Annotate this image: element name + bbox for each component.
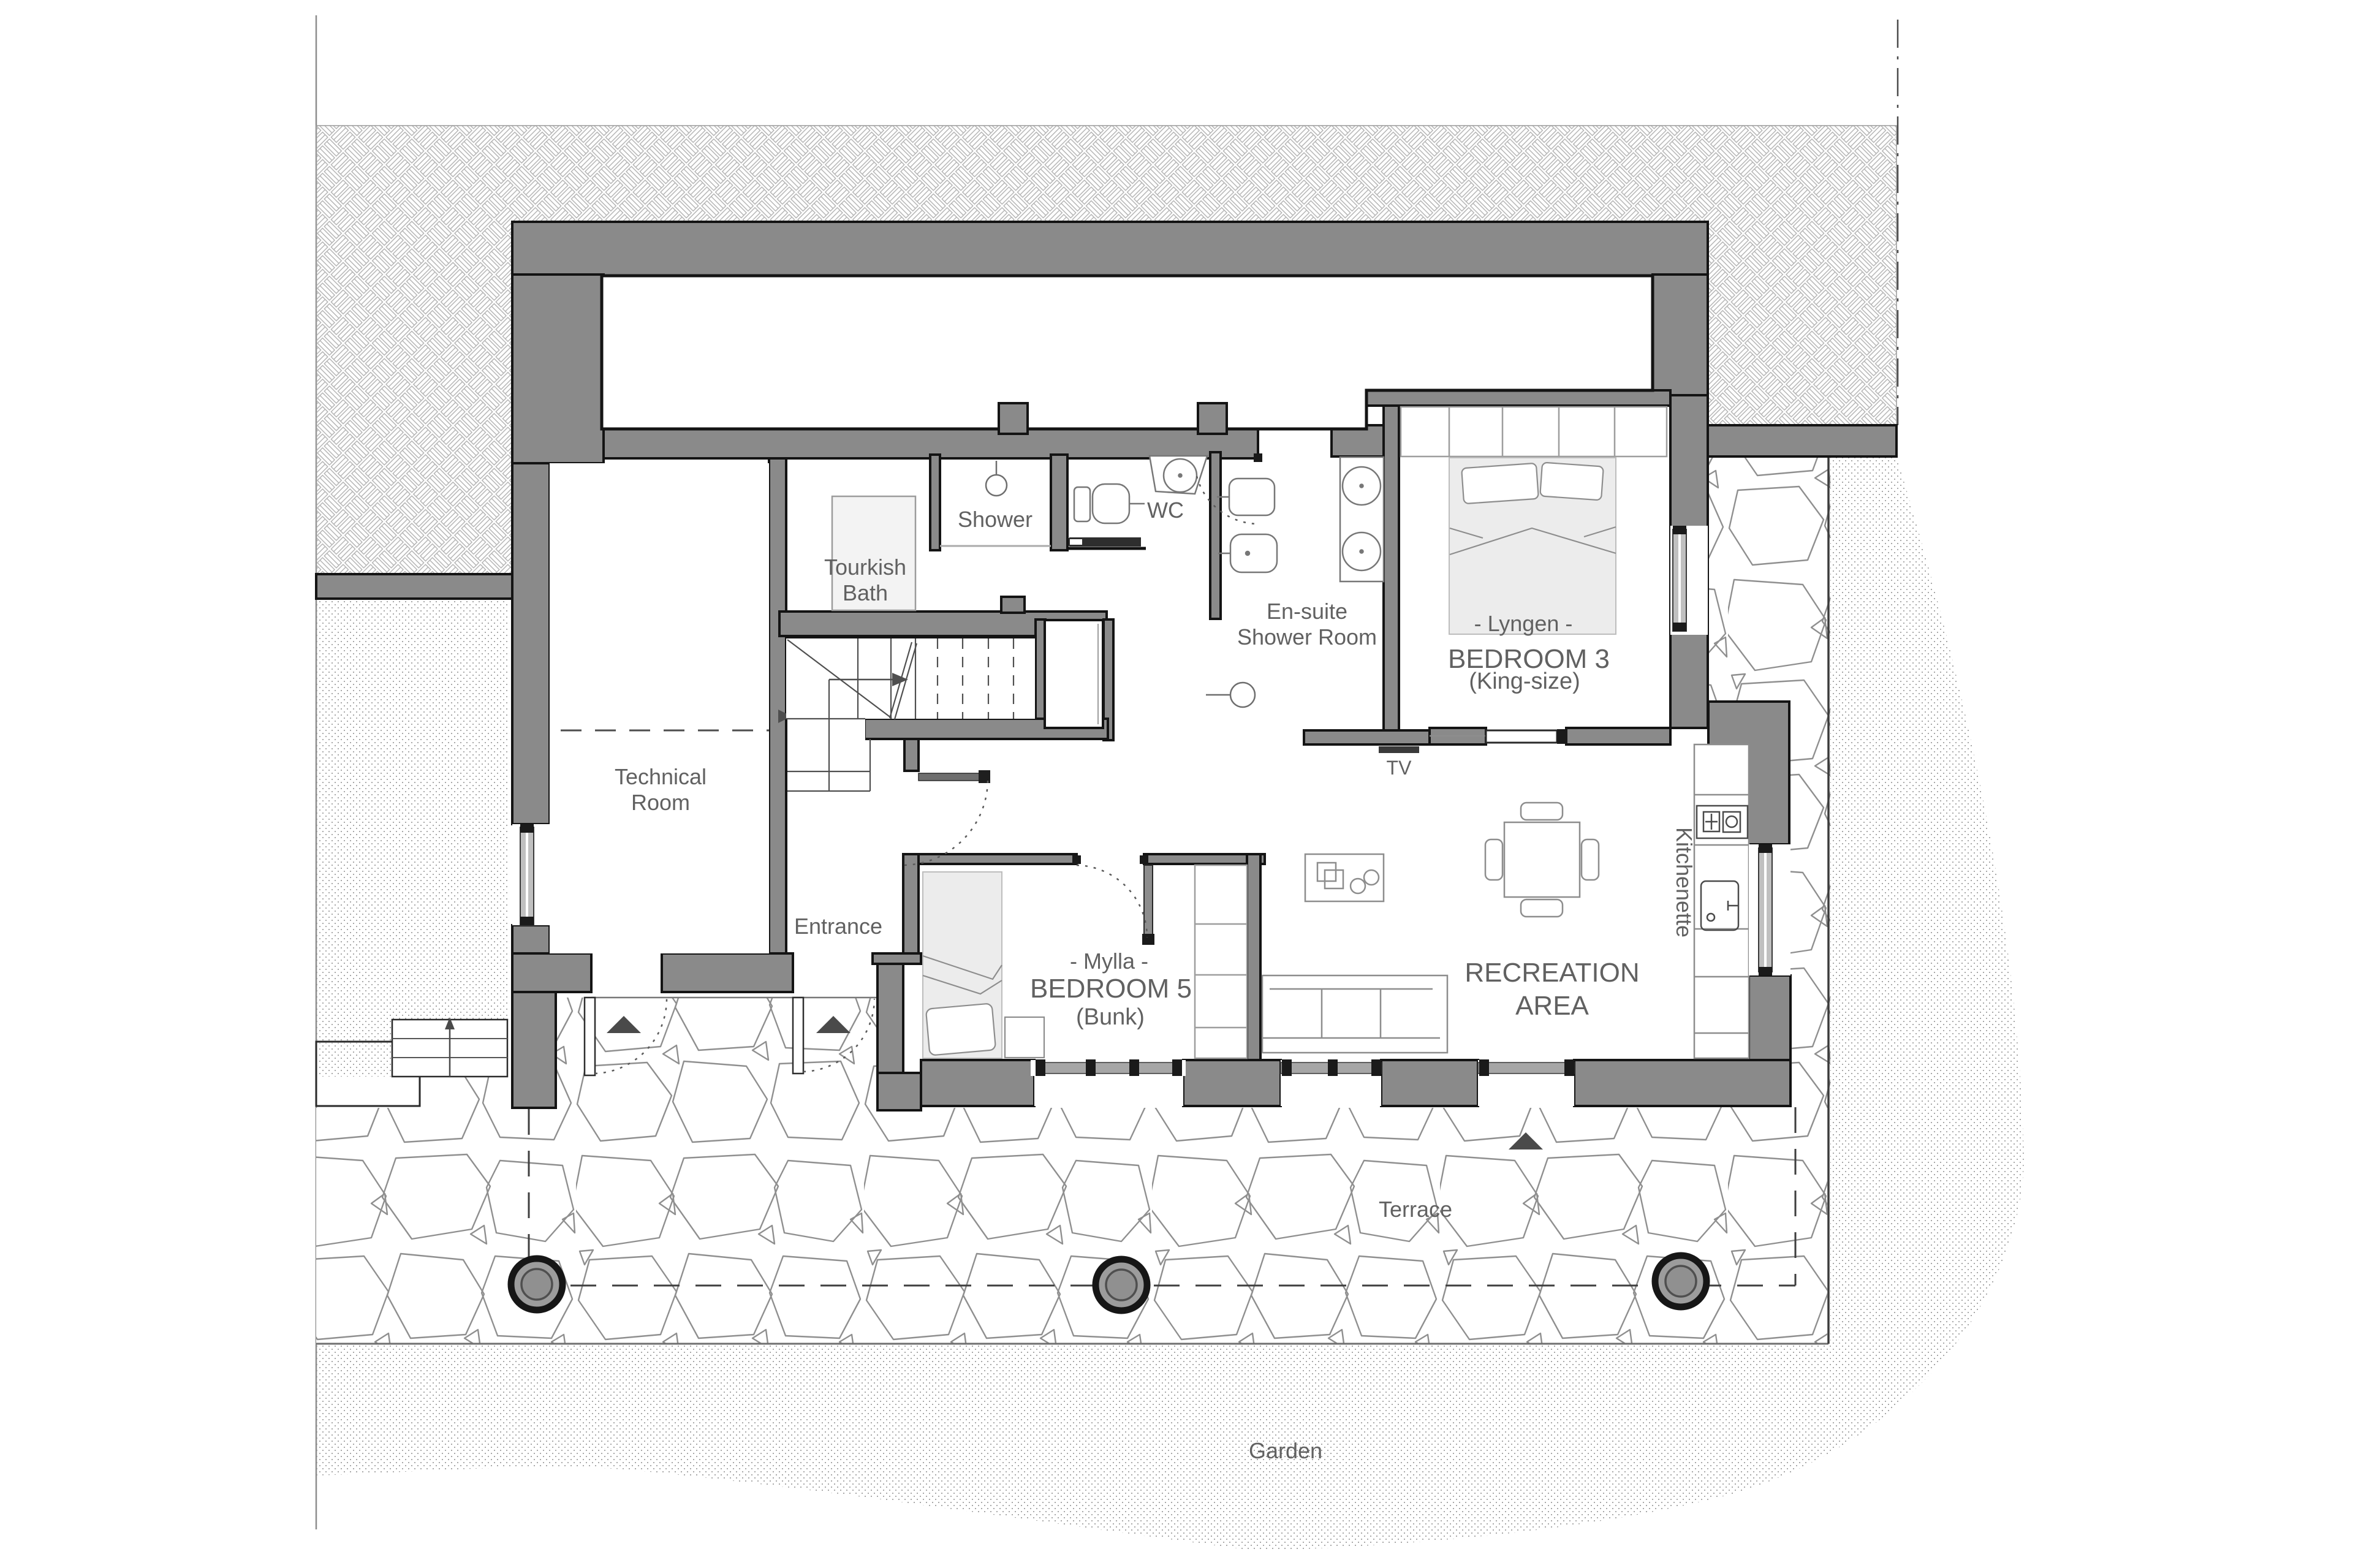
svg-text:En-suite: En-suite xyxy=(1267,599,1347,624)
svg-text:Entrance: Entrance xyxy=(794,914,882,939)
svg-text:WC: WC xyxy=(1147,498,1184,523)
svg-text:Room: Room xyxy=(631,790,690,815)
svg-text:Kitchenette: Kitchenette xyxy=(1672,827,1697,937)
svg-text:Shower: Shower xyxy=(958,507,1033,532)
svg-text:Technical: Technical xyxy=(615,764,707,789)
svg-text:Tourkish: Tourkish xyxy=(824,555,906,580)
svg-text:AREA: AREA xyxy=(1515,991,1589,1021)
svg-text:- Mylla -: - Mylla - xyxy=(1070,949,1148,974)
svg-text:- Lyngen -: - Lyngen - xyxy=(1474,611,1573,636)
svg-text:BEDROOM 5: BEDROOM 5 xyxy=(1030,974,1192,1004)
svg-text:Bath: Bath xyxy=(843,580,888,605)
svg-text:RECREATION: RECREATION xyxy=(1464,958,1639,988)
svg-text:Garden: Garden xyxy=(1249,1438,1322,1463)
svg-text:TV: TV xyxy=(1387,757,1412,779)
svg-text:Terrace: Terrace xyxy=(1379,1197,1452,1222)
svg-text:(King-size): (King-size) xyxy=(1469,668,1580,694)
svg-text:Shower Room: Shower Room xyxy=(1237,624,1377,650)
svg-text:(Bunk): (Bunk) xyxy=(1076,1004,1145,1030)
